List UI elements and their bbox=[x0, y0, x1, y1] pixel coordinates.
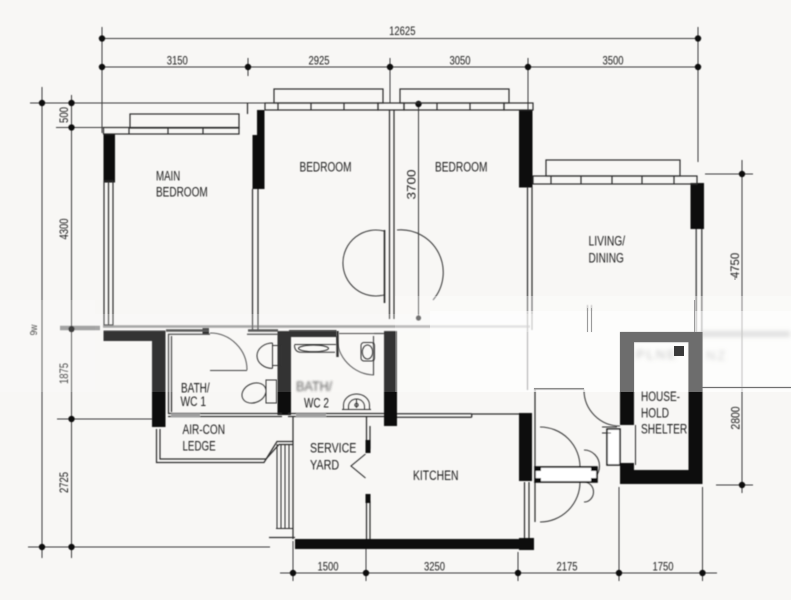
svg-text:MAIN: MAIN bbox=[156, 168, 180, 184]
svg-text:YARD: YARD bbox=[310, 457, 339, 473]
svg-text:2925: 2925 bbox=[308, 55, 329, 68]
svg-text:KITCHEN: KITCHEN bbox=[413, 468, 459, 484]
svg-text:DINING: DINING bbox=[589, 250, 624, 266]
svg-text:LEDGE: LEDGE bbox=[183, 438, 216, 454]
svg-text:WC 2: WC 2 bbox=[304, 395, 329, 411]
svg-text:BEDROOM: BEDROOM bbox=[156, 184, 208, 200]
svg-text:HOUSE-: HOUSE- bbox=[641, 388, 680, 404]
svg-text:3700: 3700 bbox=[404, 170, 418, 200]
svg-text:SHELTER: SHELTER bbox=[641, 421, 687, 437]
svg-text:3500: 3500 bbox=[602, 55, 623, 68]
svg-text:WC 1: WC 1 bbox=[181, 393, 207, 409]
svg-text:2175: 2175 bbox=[556, 561, 577, 574]
svg-text:BEDROOM: BEDROOM bbox=[300, 159, 352, 175]
svg-text:3150: 3150 bbox=[167, 55, 188, 68]
svg-text:HOLD: HOLD bbox=[641, 405, 669, 421]
svg-text:BEDROOM: BEDROOM bbox=[435, 159, 487, 175]
svg-text:4300: 4300 bbox=[58, 218, 71, 239]
svg-text:SERVICE: SERVICE bbox=[310, 440, 356, 456]
svg-text:4750: 4750 bbox=[729, 252, 742, 278]
svg-text:3050: 3050 bbox=[449, 55, 470, 68]
svg-text:12625: 12625 bbox=[389, 25, 415, 38]
svg-text:1750: 1750 bbox=[652, 561, 673, 574]
svg-text:1500: 1500 bbox=[317, 561, 338, 574]
svg-text:AIR-CON: AIR-CON bbox=[183, 421, 225, 437]
svg-text:2800: 2800 bbox=[730, 406, 743, 429]
svg-text:BATH/: BATH/ bbox=[296, 378, 332, 394]
svg-text:2725: 2725 bbox=[58, 472, 71, 493]
svg-text:3250: 3250 bbox=[424, 561, 445, 574]
svg-text:LIVING/: LIVING/ bbox=[589, 233, 626, 249]
svg-text:NZ: NZ bbox=[706, 348, 727, 363]
svg-text:PLNE: PLNE bbox=[636, 347, 678, 362]
svg-text:500: 500 bbox=[58, 107, 71, 123]
